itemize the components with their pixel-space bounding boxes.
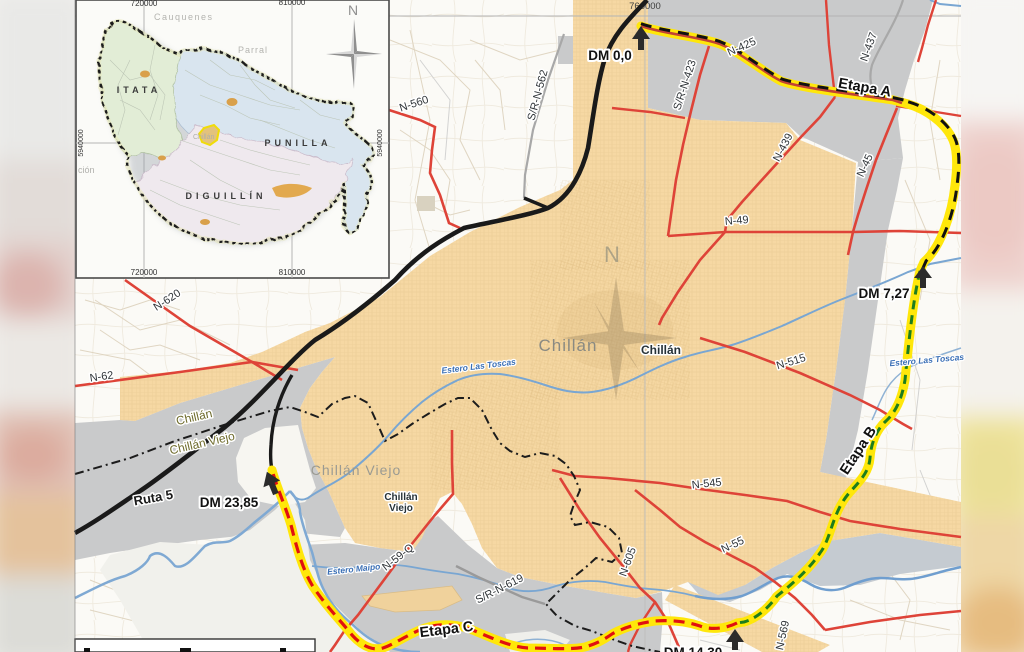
svg-text:N: N [604, 242, 620, 267]
svg-text:Cauquenes: Cauquenes [154, 12, 214, 22]
svg-text:5940000: 5940000 [78, 129, 85, 156]
svg-text:Chillán: Chillán [193, 134, 215, 141]
svg-text:ITATA: ITATA [117, 85, 162, 95]
svg-text:DM 14,30: DM 14,30 [664, 645, 723, 652]
svg-text:N: N [348, 2, 358, 18]
svg-text:810000: 810000 [279, 268, 306, 277]
svg-text:Chillán: Chillán [384, 492, 417, 503]
svg-text:810000: 810000 [279, 0, 306, 7]
svg-text:DIGUILLÍN: DIGUILLÍN [186, 191, 267, 201]
svg-text:5940000: 5940000 [377, 129, 384, 156]
svg-text:Chillán Viejo: Chillán Viejo [311, 462, 402, 478]
svg-text:720000: 720000 [131, 0, 158, 8]
svg-text:720000: 720000 [131, 268, 158, 277]
svg-text:ción: ción [78, 165, 95, 175]
svg-text:Chillán: Chillán [641, 343, 681, 357]
svg-text:DM 7,27: DM 7,27 [858, 286, 909, 301]
svg-text:DM 23,85: DM 23,85 [200, 495, 259, 510]
svg-text:PUNILLA: PUNILLA [265, 138, 332, 148]
svg-text:Chillán: Chillán [539, 336, 598, 355]
svg-text:Viejo: Viejo [389, 503, 413, 514]
svg-text:N-49: N-49 [724, 214, 749, 228]
svg-text:DM 0,0: DM 0,0 [588, 48, 632, 63]
svg-text:Parral: Parral [238, 45, 268, 55]
